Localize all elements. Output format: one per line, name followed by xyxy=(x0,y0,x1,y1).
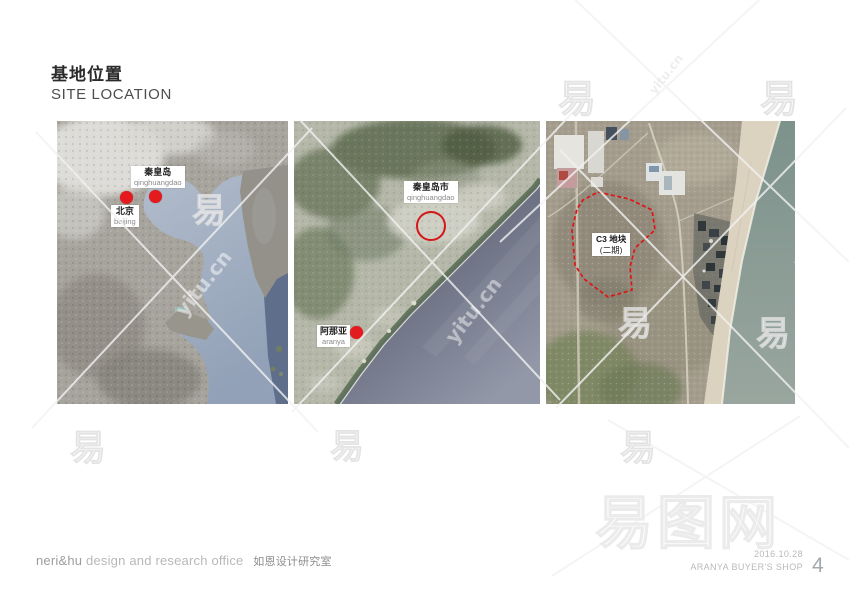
watermark-big-text: 易图网 xyxy=(595,489,781,557)
label-zh: 北京 xyxy=(114,206,136,217)
studio-descriptor: design and research office xyxy=(86,553,243,568)
site-aerial-map: C3 地块 (二期) xyxy=(546,121,795,404)
page-number: 4 xyxy=(812,554,824,578)
marker-dot-beijing xyxy=(120,191,133,204)
site-label-line2: (二期) xyxy=(596,245,626,256)
page-title-chinese: 基地位置 xyxy=(51,60,123,85)
watermark-site-text: yitu.cn xyxy=(789,214,839,271)
site-label-line1: C3 地块 xyxy=(596,234,626,245)
label-zh: 秦皇岛市 xyxy=(407,182,455,193)
studio-name: neri&hu xyxy=(36,553,82,568)
marker-circle-qinhuangdao-city xyxy=(416,211,446,241)
regional-satellite-map: 秦皇岛 qinghuangdao 北京 beijing xyxy=(57,121,288,404)
label-en: qinghuangdao xyxy=(134,178,182,187)
marker-label-qinhuangdao: 秦皇岛 qinghuangdao xyxy=(131,166,185,188)
site-map-image xyxy=(546,121,795,404)
project-name: ARANYA BUYER'S SHOP xyxy=(690,561,803,574)
site-parcel-label: C3 地块 (二期) xyxy=(592,233,630,256)
studio-name-chinese: 如恩设计研究室 xyxy=(253,556,331,568)
marker-label-aranya: 阿那亚 aranya xyxy=(317,325,350,347)
watermark-site-text: yitu.cn xyxy=(646,52,686,97)
page-title-english: SITE LOCATION xyxy=(51,86,172,103)
city-map-image xyxy=(294,121,540,404)
marker-dot-qinhuangdao xyxy=(149,190,162,203)
date-label: 2016.10.28 xyxy=(690,548,803,561)
watermark-glyph: 易 xyxy=(760,77,798,121)
label-en: aranya xyxy=(320,337,347,346)
marker-label-beijing: 北京 beijing xyxy=(111,205,139,227)
watermark-glyph: 易 xyxy=(620,428,656,469)
regional-map-image xyxy=(57,121,288,404)
watermark-glyph: 易 xyxy=(558,77,596,121)
label-en: beijing xyxy=(114,217,136,226)
studio-signature: neri&hu design and research office 如恩设计研… xyxy=(36,553,332,569)
label-zh: 秦皇岛 xyxy=(134,167,182,178)
watermark-glyph: 易 xyxy=(330,427,364,467)
marker-label-qinhuangdao-city: 秦皇岛市 qinghuangdao xyxy=(404,181,458,203)
slide-page: 基地位置 SITE LOCATION xyxy=(0,0,849,600)
label-en: qinghuangdao xyxy=(407,193,455,202)
marker-dot-aranya xyxy=(350,326,363,339)
label-zh: 阿那亚 xyxy=(320,326,347,337)
project-info: 2016.10.28 ARANYA BUYER'S SHOP xyxy=(690,548,803,574)
watermark-glyph: 易 xyxy=(70,428,106,469)
city-satellite-map: 秦皇岛市 qinghuangdao 阿那亚 aranya xyxy=(294,121,540,404)
